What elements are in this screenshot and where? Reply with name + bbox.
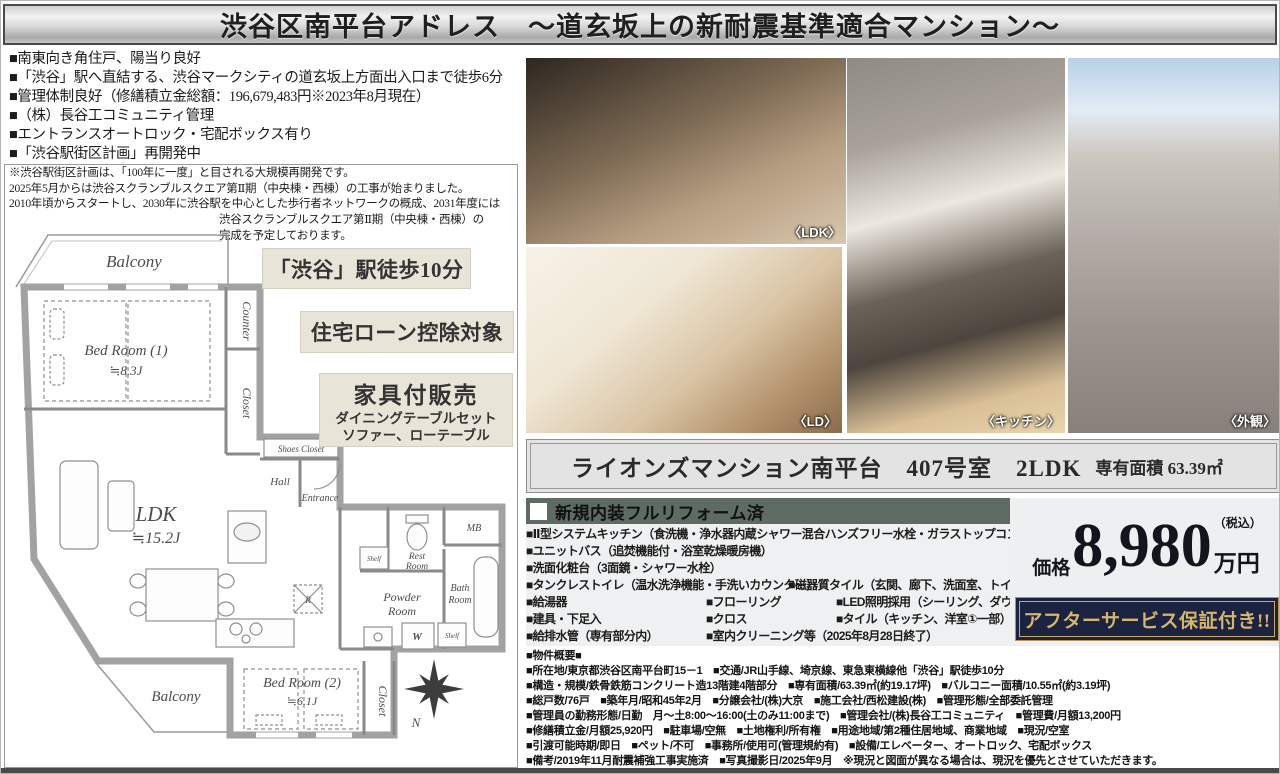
room-label-shelf2: Shelf <box>445 632 460 640</box>
photo-ld-caption: 〈LD〉 <box>794 411 837 430</box>
badge-station-walk: 「渋谷」駅徒歩10分 <box>262 248 471 289</box>
badge-furniture-line1: ダイニングテーブルセット <box>335 410 496 427</box>
title-bar: 渋谷区南平台アドレス ～道玄坂上の新耐震基準適合マンション～ <box>3 4 1277 45</box>
feature-item: ■（株）長谷工コミュニティ管理 <box>9 107 521 126</box>
room-label-powder-1: Powder <box>382 590 421 604</box>
price-label: 価格 <box>1032 553 1070 580</box>
room-label-bedroom1: Bed Room (1) <box>84 343 167 359</box>
room-label-bath-1: Bath <box>451 583 470 594</box>
reform-row: ■建具・下足入■クロス■タイル（キッチン、洋室①一部） <box>526 611 1010 628</box>
property-name: ライオンズマンション南平台 407号室 2LDK <box>571 449 1081 483</box>
reform-row-cell: ■タイル（キッチン、洋室①一部） <box>836 611 1010 628</box>
badge-housing-loan-text: 住宅ローン控除対象 <box>311 317 503 347</box>
photo-ldk-caption: 〈LDK〉 <box>788 222 841 241</box>
after-service-badge: アフターサービス保証付き!! <box>1015 597 1279 641</box>
room-label-shelf1: Shelf <box>367 555 382 563</box>
room-label-rest-2: Room <box>405 562 428 572</box>
reform-row-cell: ■室内クリーニング等（2025年8月28日終了） <box>706 628 938 645</box>
overview-line: ■管理員の勤務形態/日勤 月～土8:00～16:00(土のみ11:00まで) ■… <box>526 709 1280 724</box>
reform-header-text: 新規内装フルリフォーム済 <box>555 499 765 524</box>
badge-furniture: 家具付販売 ダイニングテーブルセット ソファー、ローテーブル <box>319 373 513 447</box>
after-service-text: アフターサービス保証付き!! <box>1023 606 1270 633</box>
badge-station-walk-text: 「渋谷」駅徒歩10分 <box>270 254 464 284</box>
flyer-page: 渋谷区南平台アドレス ～道玄坂上の新耐震基準適合マンション～ ■南東向き角住戸、… <box>0 0 1280 774</box>
reform-row-cell: ■給排水管（専有部分内） <box>526 628 702 645</box>
feature-item: ■南東向き角住戸、陽当り良好 <box>9 50 521 69</box>
overview-line: ■引渡可能時期/即日 ■ペット/不可 ■事務所/使用可(管理規約有) ■設備/エ… <box>526 739 1280 754</box>
reform-row-cell: ■ユニットバス（追焚機能付・浴室乾燥暖房機） <box>526 543 772 560</box>
reform-list: ■Ⅱ型システムキッチン（食洗機・浄水器内蔵シャワー混合ハンズフリー水栓・ガラスト… <box>526 524 1010 645</box>
room-label-balcony-bottom: Balcony <box>151 689 200 705</box>
reform-row-cell: ■クロス <box>706 611 832 628</box>
room-label-balcony-top: Balcony <box>106 252 162 271</box>
photo-kitchen: 〈キッチン〉 <box>847 58 1065 433</box>
reform-row-cell: ■LED照明採用（シーリング、ダウンライト） <box>836 594 1010 611</box>
badge-furniture-line2: ソファー、ローテーブル <box>342 427 490 444</box>
note-line: ※渋谷駅街区計画は、「100年に一度」と目される大規模再開発です。 <box>9 166 514 182</box>
room-label-washer: W <box>412 631 423 643</box>
reform-row-cell: ■洗面化粧台（3面鏡・シャワー水栓） <box>526 560 721 577</box>
room-label-shoes-closet: Shoes Closet <box>278 444 325 454</box>
room-label-fridge: R <box>304 595 311 605</box>
photo-exterior: 〈外観〉 <box>1068 58 1280 433</box>
reform-row: ■タンクレストイレ（温水洗浄機能・手洗いカウンター）■磁器質タイル（玄関、廊下、… <box>526 577 1010 594</box>
overview-line: ■物件概要■ <box>526 649 1280 664</box>
photo-ld: 〈LD〉 <box>526 247 842 433</box>
compass-icon <box>404 659 464 719</box>
price-block: 価格 8,980 （税込） 万円 <box>1013 498 1280 594</box>
page-title: 渋谷区南平台アドレス ～道玄坂上の新耐震基準適合マンション～ <box>220 5 1060 44</box>
property-overview: ■物件概要■■所在地/東京都渋谷区南平台町15－1 ■交通/JR山手線、埼京線、… <box>526 649 1280 769</box>
photo-ldk: 〈LDK〉 <box>526 58 846 244</box>
reform-row-cell: ■Ⅱ型システムキッチン（食洗機・浄水器内蔵シャワー混合ハンズフリー水栓・ガラスト… <box>526 526 1006 543</box>
photo-exterior-caption: 〈外観〉 <box>1224 411 1276 430</box>
feature-item: ■エントランスオートロック・宅配ボックス有り <box>9 126 521 145</box>
overview-line: ■総戸数/76戸 ■築年月/昭和45年2月 ■分譲会社/(株)大京 ■施工会社/… <box>526 694 1280 709</box>
note-line: 2025年5月からは渋谷スクランブルスクエア第Ⅱ期（中央棟・西棟）の工事が始まり… <box>9 182 514 198</box>
reform-row-cell: ■建具・下足入 <box>526 611 702 628</box>
badge-furniture-title: 家具付販売 <box>354 376 479 410</box>
price-tax-note: （税込） <box>1214 514 1262 531</box>
feature-item: ■管理体制良好（修繕積立金総額：196,679,483円※2023年8月現在） <box>9 88 521 107</box>
property-name-band: ライオンズマンション南平台 407号室 2LDK 専有面積 63.39㎡ <box>526 439 1280 493</box>
reform-row: ■Ⅱ型システムキッチン（食洗機・浄水器内蔵シャワー混合ハンズフリー水栓・ガラスト… <box>526 526 1010 543</box>
white-square-icon <box>530 503 547 520</box>
room-label-bath-2: Room <box>447 595 471 606</box>
room-label-powder-2: Room <box>387 604 416 618</box>
floor-plan: Balcony Bed Room (1) ≒8.3J Counter Close… <box>4 229 519 767</box>
redevelopment-note: ※渋谷駅街区計画は、「100年に一度」と目される大規模再開発です。2025年5月… <box>9 166 514 213</box>
reform-row-cell: ■給湯器 <box>526 594 702 611</box>
compass-n-label: N <box>411 715 422 730</box>
footer-bar <box>1 768 1280 774</box>
room-label-ldk: LDK <box>135 502 178 526</box>
room-size-bedroom1: ≒8.3J <box>110 363 144 378</box>
reform-row-cell: ■磁器質タイル（玄関、廊下、洗面室、トイレ） <box>788 577 1006 594</box>
note-line: 2010年頃からスタートし、2030年に渋谷駅を中心とした歩行者ネットワークの概… <box>9 197 514 213</box>
reform-header: 新規内装フルリフォーム済 <box>526 498 1010 524</box>
feature-list: ■南東向き角住戸、陽当り良好■「渋谷」駅へ直結する、渋谷マークシティの道玄坂上方… <box>9 50 521 163</box>
reform-row-cell: ■タンクレストイレ（温水洗浄機能・手洗いカウンター） <box>526 577 784 594</box>
reform-row-cell: ■フローリング <box>706 594 832 611</box>
room-label-closet-upper: Closet <box>240 388 254 419</box>
feature-item: ■「渋谷駅街区計画」再開発中 <box>9 145 521 164</box>
room-label-mb: MB <box>466 523 481 534</box>
room-label-entrance: Entrance <box>301 493 339 504</box>
reform-section: 新規内装フルリフォーム済 ■Ⅱ型システムキッチン（食洗機・浄水器内蔵シャワー混合… <box>526 498 1010 646</box>
price-amount: 8,980 <box>1072 515 1212 577</box>
overview-line: ■修繕積立金/月額25,920円 ■駐車場/空無 ■土地権利/所有権 ■用途地域… <box>526 724 1280 739</box>
overview-line: ■備考/2019年11月耐震補強工事実施済 ■写真撮影日/2025年9月 ※現況… <box>526 754 1280 769</box>
price-unit-group: （税込） 万円 <box>1214 514 1262 578</box>
photo-kitchen-caption: 〈キッチン〉 <box>982 411 1060 430</box>
property-area: 専有面積 63.39㎡ <box>1095 454 1223 479</box>
note-line: 渋谷スクランブルスクエア第Ⅱ期（中央棟・西棟）の <box>219 213 519 229</box>
feature-item: ■「渋谷」駅へ直結する、渋谷マークシティの道玄坂上方面出入口まで徒歩6分 <box>9 69 521 88</box>
room-label-rest-1: Rest <box>408 552 426 562</box>
room-label-counter: Counter <box>240 301 254 341</box>
price-unit: 万円 <box>1214 544 1262 578</box>
reform-row: ■ユニットバス（追焚機能付・浴室乾燥暖房機） <box>526 543 1010 560</box>
overview-line: ■構造・規模/鉄骨鉄筋コンクリート造13階建4階部分 ■専有面積/63.39㎡(… <box>526 679 1280 694</box>
reform-row: ■洗面化粧台（3面鏡・シャワー水栓） <box>526 560 1010 577</box>
overview-line: ■所在地/東京都渋谷区南平台町15－1 ■交通/JR山手線、埼京線、東急東横線他… <box>526 664 1280 679</box>
room-size-bedroom2: ≒6.1J <box>287 694 318 708</box>
room-label-bedroom2: Bed Room (2) <box>263 676 341 691</box>
room-label-hall: Hall <box>269 476 290 488</box>
reform-row: ■給排水管（専有部分内）■室内クリーニング等（2025年8月28日終了） <box>526 628 1010 645</box>
reform-row: ■給湯器■フローリング■LED照明採用（シーリング、ダウンライト） <box>526 594 1010 611</box>
badge-housing-loan: 住宅ローン控除対象 <box>300 311 514 353</box>
room-label-closet-lower: Closet <box>376 686 390 717</box>
room-size-ldk: ≒15.2J <box>132 530 181 547</box>
